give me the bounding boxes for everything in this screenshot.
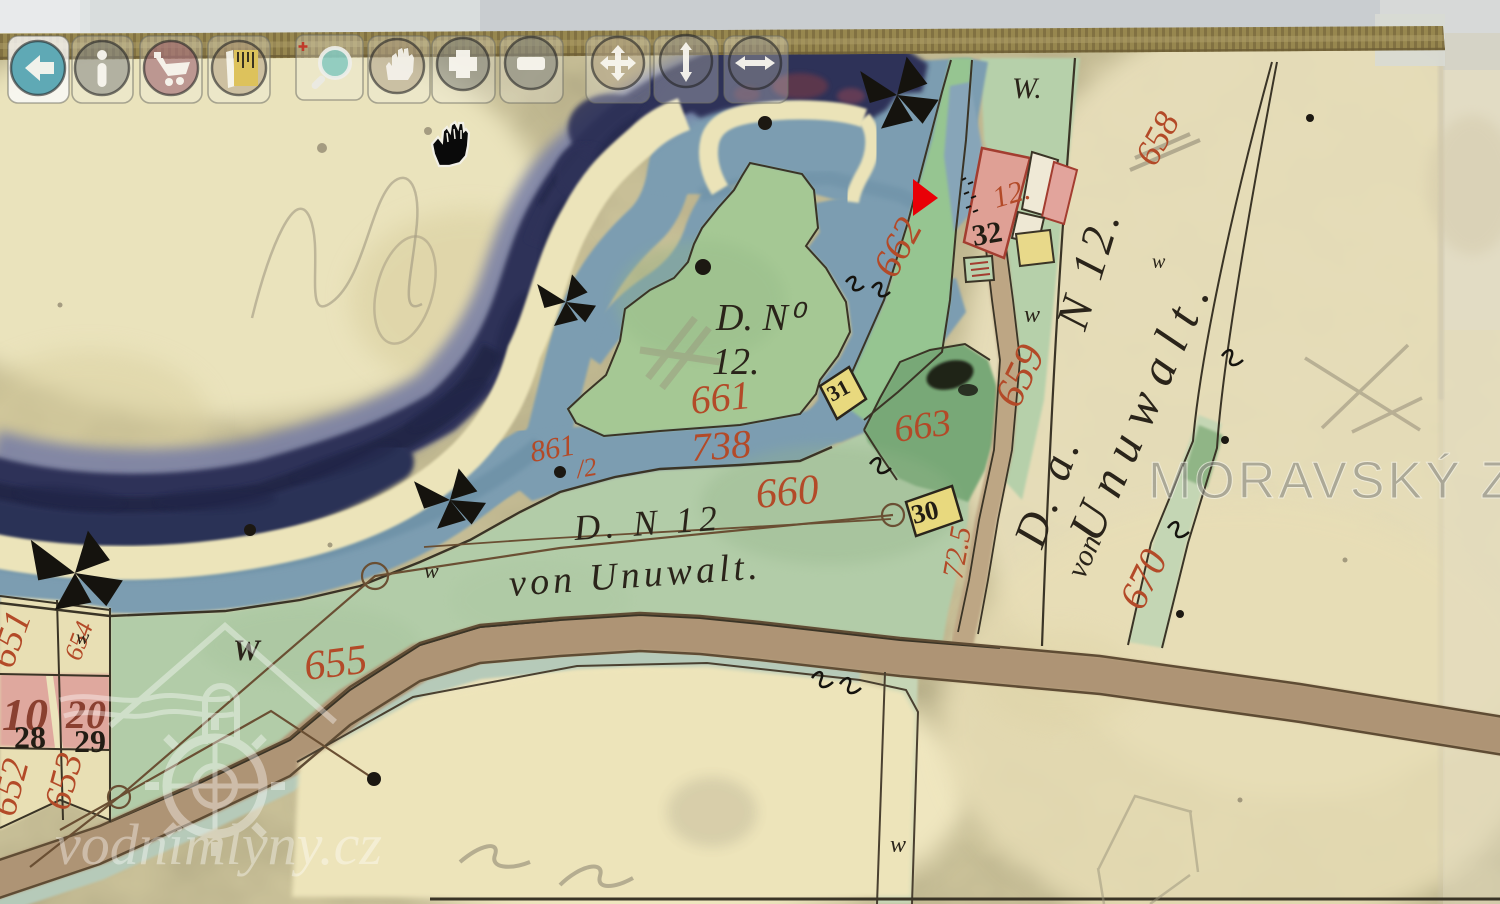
svg-text:663: 663 [891,401,953,451]
svg-text:655: 655 [302,637,370,690]
svg-text:29: 29 [74,723,106,759]
svg-text:w: w [890,832,906,858]
svg-text:32: 32 [969,215,1004,253]
svg-text:w: w [1024,302,1040,328]
svg-text:MORAVSKÝ ZE: MORAVSKÝ ZE [1148,452,1500,510]
svg-text:w: w [76,627,90,649]
svg-text:W.: W. [1012,72,1042,105]
svg-text:w: w [1152,251,1166,273]
svg-text:w: w [424,558,439,583]
svg-text:28: 28 [14,719,46,755]
svg-text:12.: 12. [712,341,760,383]
svg-text:660: 660 [754,467,821,518]
svg-text:D. N⁰: D. N⁰ [715,297,808,339]
svg-text:738: 738 [689,421,752,470]
